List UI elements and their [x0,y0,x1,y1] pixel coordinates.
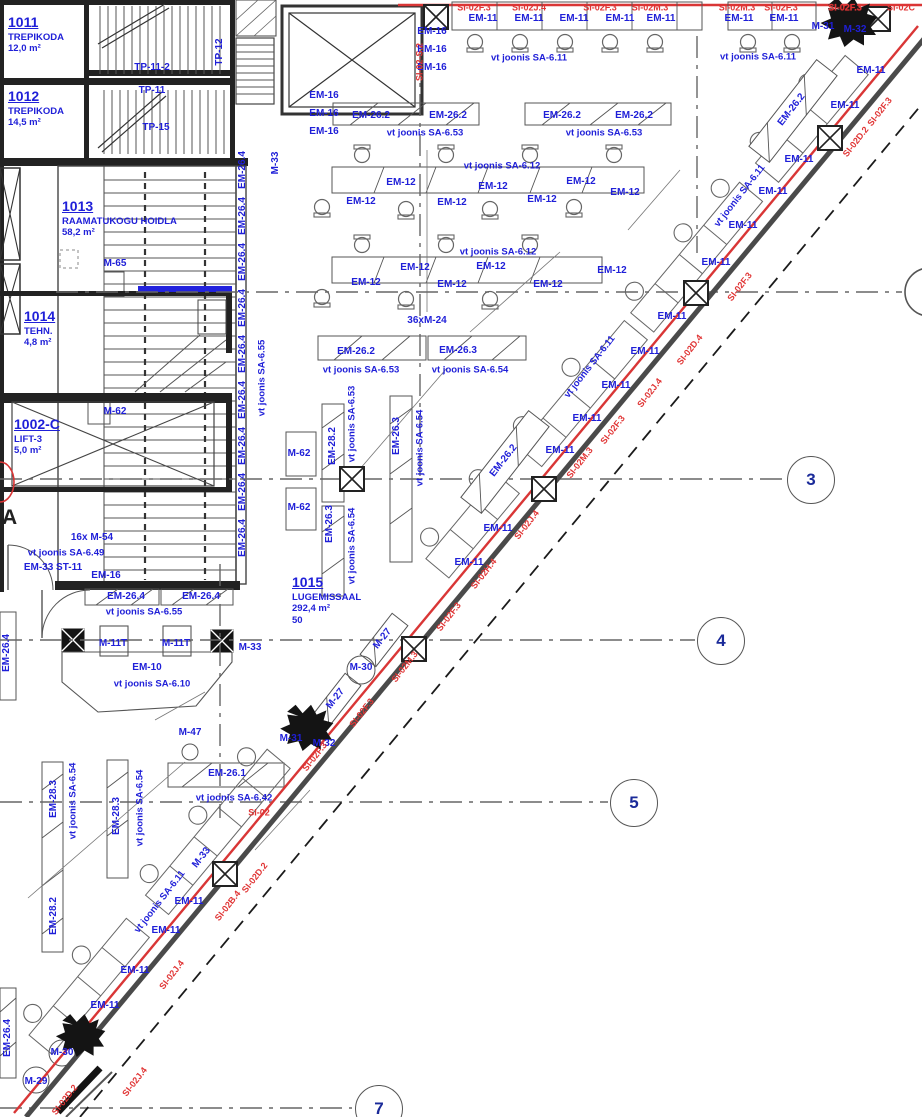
equipment-code-label: EM-16 [309,109,338,119]
room-label-1014: 1014TEHN.4,8 m² [24,308,55,349]
equipment-code-label: EM-12 [533,280,562,290]
equipment-code-label: EM-12 [610,188,639,198]
drawing-reference-note: vt joonis SA-6.55 [257,340,267,417]
equipment-code-label: EM-26.4 [3,1019,13,1057]
drawing-reference-note: vt joonis SA-6.53 [387,128,464,138]
grid-letter-A: A [2,506,17,530]
drawing-reference-note: vt joonis SA-6.53 [566,128,643,138]
drawing-reference-note: vt joonis SA-6.55 [106,607,183,617]
room-info-line: LIFT-3 [14,434,60,446]
equipment-code-label: EM-11 [91,1001,120,1011]
equipment-code-label: EM-16 [309,91,338,101]
equipment-code-label: EM-26.4 [238,243,248,281]
equipment-code-label: EM-11 [602,381,631,391]
equipment-code-label: EM-26.2 [615,111,653,121]
equipment-code-label: EM-11 [152,926,181,936]
equipment-code-label: EM-11 [546,446,575,456]
equipment-code-label: EM-26.2 [337,347,375,357]
equipment-code-label: M-32 [844,25,867,35]
equipment-code-label: EM-11 [729,221,758,231]
fire-protection-code-label: SI-02F.3 [828,4,862,13]
equipment-code-label: EM-26.4 [182,592,220,602]
drawing-reference-note: vt joonis SA-6.54 [135,770,145,847]
equipment-code-label: 36xM-24 [407,316,446,326]
equipment-code-label: EM-12 [437,280,466,290]
equipment-code-label: EM-11 [631,347,660,357]
equipment-code-label: EM-26.4 [238,151,248,189]
equipment-code-label: EM-12 [478,182,507,192]
drawing-reference-note: vt joonis SA-6.54 [432,365,509,375]
equipment-code-label: EM-26.3 [439,346,477,356]
equipment-code-label: EM-26.3 [325,505,335,543]
equipment-code-label: EM-10 [132,663,161,673]
equipment-code-label: TP-15 [142,123,169,133]
equipment-code-label: EM-12 [400,263,429,273]
equipment-code-label: EM-28.3 [49,780,59,818]
equipment-code-label: EM-12 [386,178,415,188]
room-number: 1011 [8,14,64,32]
equipment-code-label: M-30 [350,663,373,673]
equipment-code-label: EM-16 [309,127,338,137]
drawing-reference-note: vt joonis SA-6.49 [28,548,105,558]
grid-bubble-3: 3 [787,456,835,504]
drawing-reference-note: vt joonis SA-6.12 [464,161,541,171]
fire-protection-code-label: SI-02-S.2 [416,43,425,81]
fire-protection-code-label: SI-02C [887,4,915,13]
equipment-code-label: EM-12 [346,197,375,207]
room-number: 1015 [292,574,361,592]
equipment-code-label: EM-26.4 [238,519,248,557]
equipment-code-label: TP-11-2 [134,63,170,73]
equipment-code-label: M-31 [812,22,835,32]
fire-protection-code-label: SI-02M.3 [719,4,756,13]
room-info-line: 12,0 m² [8,43,64,55]
room-info-line: TREPIKODA [8,106,64,118]
room-number: 1012 [8,88,64,106]
room-label-1002-C: 1002-CLIFT-35,0 m² [14,416,60,457]
floor-plan: TP-11-2TP-11TP-15TP-12M-33EM-16EM-16EM-1… [0,0,922,1117]
room-number: 1013 [62,198,177,216]
room-info-line: TEHN. [24,326,55,338]
drawing-reference-note: vt joonis SA-6.11 [491,53,567,63]
equipment-code-label: EM-26.2 [429,111,467,121]
equipment-code-label: EM-11 [658,312,687,322]
drawing-reference-note: vt joonis SA-6.53 [347,386,357,463]
equipment-code-label: EM-11 [573,414,602,424]
drawing-reference-note: vt joonis SA-6.42 [196,793,273,803]
room-info-line: TREPIKODA [8,32,64,44]
equipment-code-label: EM-16 [417,27,446,37]
room-info-line: 4,8 m² [24,337,55,349]
equipment-code-label: M-29 [25,1077,48,1087]
drawing-reference-note: vt joonis SA-6.54 [415,410,425,487]
equipment-code-label: M-62 [288,503,311,513]
equipment-code-label: EM-11 [647,14,676,24]
room-info-line: RAAMATUKOGU HOIDLA [62,216,177,228]
grid-bubble-4: 4 [697,617,745,665]
equipment-code-label: EM-26.4 [2,634,12,672]
equipment-code-label: EM-12 [351,278,380,288]
equipment-code-label: EM-11 [785,155,814,165]
drawing-reference-note: vt joonis SA-6.12 [460,247,537,257]
equipment-code-label: EM-12 [527,195,556,205]
equipment-code-label: M-65 [104,259,127,269]
equipment-code-label: EM-28.2 [49,897,59,935]
equipment-code-label: EM-28.3 [112,797,122,835]
room-number: 1014 [24,308,55,326]
equipment-code-label: EM-16 [91,571,120,581]
room-info-line: LUGEMISSAAL [292,592,361,604]
room-number: 1002-C [14,416,60,434]
room-label-1013: 1013RAAMATUKOGU HOIDLA58,2 m² [62,198,177,239]
fire-protection-code-label: SI-02F.3 [457,4,491,13]
equipment-code-label: EM-26.2 [352,111,390,121]
room-info-line: 50 [292,615,361,627]
equipment-code-label: EM-11 [560,14,589,24]
equipment-code-label: EM-11 [725,14,754,24]
fire-protection-code-label: SI-02J.4 [512,4,546,13]
equipment-code-label: EM-11 [606,14,635,24]
equipment-code-label: EM-26.4 [107,592,145,602]
equipment-code-label: EM-26.4 [238,197,248,235]
equipment-code-label: EM-26.1 [208,769,246,779]
equipment-code-label: EM-11 [759,187,788,197]
fire-protection-code-label: SI-02F.3 [764,4,798,13]
equipment-code-label: EM-33 ST-11 [24,563,82,573]
equipment-code-label: EM-11 [121,966,150,976]
equipment-code-label: EM-11 [455,558,484,568]
equipment-code-label: EM-12 [566,177,595,187]
drawing-reference-note: vt joonis SA-6.11 [720,52,796,62]
equipment-code-label: EM-26.4 [238,381,248,419]
equipment-code-label: EM-11 [469,14,498,24]
equipment-code-label: EM-12 [476,262,505,272]
equipment-code-label: M-31 [280,734,303,744]
fire-protection-code-label: SI-02M.3 [632,4,669,13]
equipment-code-label: M-30 [51,1048,74,1058]
drawing-reference-note: vt joonis SA-6.10 [114,679,191,689]
equipment-code-label: EM-11 [831,101,860,111]
room-label-1012: 1012TREPIKODA14,5 m² [8,88,64,129]
equipment-code-label: EM-26.3 [392,417,402,455]
equipment-code-label: M-33 [271,152,281,175]
equipment-code-label: TP-12 [215,38,225,65]
equipment-code-label: M-33 [239,643,262,653]
fire-protection-code-label: SI-02F.3 [583,4,617,13]
grid-bubble-5: 5 [610,779,658,827]
equipment-code-label: EM-11 [702,258,731,268]
equipment-code-label: EM-11 [770,14,799,24]
drawing-reference-note: vt joonis SA-6.54 [68,763,78,840]
equipment-code-label: EM-28.2 [328,427,338,465]
room-info-line: 58,2 m² [62,227,177,239]
equipment-code-label: M-62 [288,449,311,459]
room-info-line: 14,5 m² [8,117,64,129]
equipment-code-label: EM-26.2 [543,111,581,121]
equipment-code-label: M-62 [104,407,127,417]
equipment-code-label: EM-11 [175,897,204,907]
equipment-code-label: M-11T [99,639,127,649]
room-info-line: 292,4 m² [292,603,361,615]
equipment-code-label: EM-26.4 [238,335,248,373]
equipment-code-label: EM-11 [484,524,513,534]
room-info-line: 5,0 m² [14,445,60,457]
equipment-code-label: EM-12 [597,266,626,276]
equipment-code-label: EM-26.4 [238,289,248,327]
equipment-code-label: EM-11 [857,66,886,76]
fire-protection-code-label: SI-02 [248,809,270,818]
equipment-code-label: EM-12 [437,198,466,208]
equipment-code-label: EM-11 [515,14,544,24]
equipment-code-label: EM-26.4 [238,427,248,465]
equipment-code-label: M-47 [179,728,202,738]
drawing-reference-note: vt joonis SA-6.53 [323,365,400,375]
room-label-1011: 1011TREPIKODA12,0 m² [8,14,64,55]
room-label-1015: 1015LUGEMISSAAL292,4 m²50 [292,574,361,627]
equipment-code-label: TP-11 [139,86,166,96]
equipment-code-label: 16x M-54 [71,533,113,543]
equipment-code-label: EM-26.4 [238,473,248,511]
equipment-code-label: M-11T [162,639,190,649]
drawing-reference-note: vt joonis SA-6.54 [347,508,357,585]
